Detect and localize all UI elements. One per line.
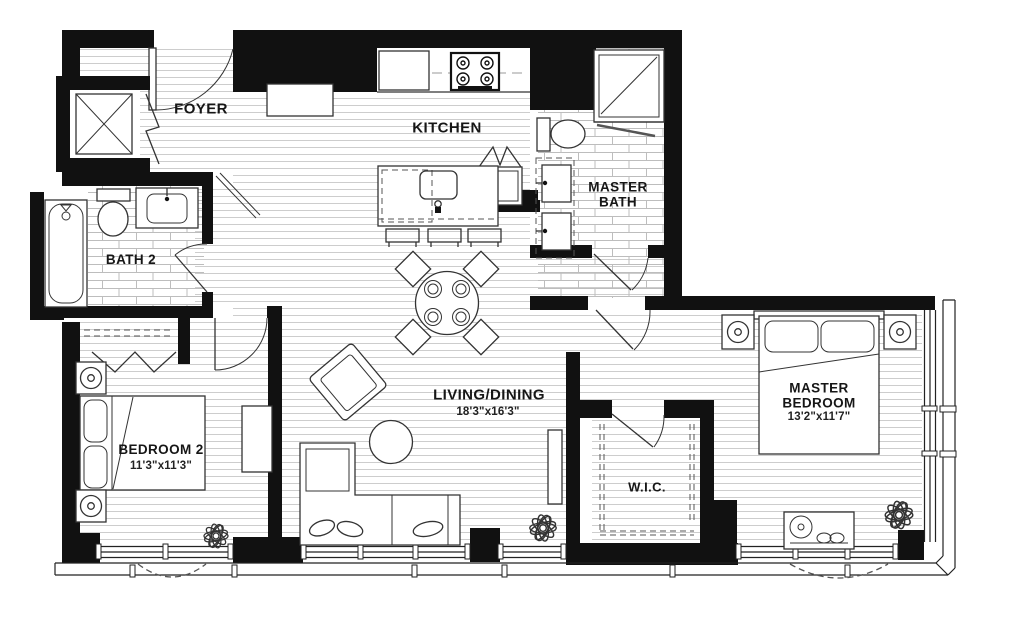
console-table — [267, 84, 333, 116]
toilet-icon — [551, 120, 585, 148]
floor-plan-drawing — [0, 0, 1024, 620]
console-table-hall — [548, 430, 562, 504]
dresser — [242, 406, 272, 472]
room-label-bedroom2: BEDROOM 2 — [118, 443, 203, 458]
room-dims-master-bedroom: 13'2"x11'7" — [788, 411, 851, 423]
toilet-tank — [97, 189, 130, 201]
faucet-icon — [165, 197, 169, 201]
nightstand — [722, 315, 754, 349]
room-label-bath2: BATH 2 — [106, 253, 156, 268]
room-label-master-bath-line1: MASTER — [588, 181, 647, 196]
toilet-tank — [537, 118, 550, 151]
room-label-kitchen: KITCHEN — [412, 120, 481, 137]
room-dims-bedroom2: 11'3"x11'3" — [130, 460, 192, 472]
room-label-master-bath: MASTER BATH — [588, 181, 647, 210]
bathtub-icon — [45, 200, 87, 307]
toilet-icon — [98, 202, 128, 236]
room-label-foyer: FOYER — [174, 101, 228, 118]
operable-window-arc — [790, 564, 888, 578]
room-label-master-bedroom: MASTER BEDROOM — [782, 382, 855, 411]
room-dims-living-dining: 18'3"x16'3" — [456, 406, 519, 418]
cooktop-icon — [451, 53, 499, 90]
room-label-master-bedroom-line1: MASTER — [782, 382, 855, 397]
coffee-table — [370, 421, 413, 464]
nightstand — [884, 315, 916, 349]
room-label-master-bedroom-line2: BEDROOM — [782, 396, 855, 411]
room-label-living-dining: LIVING/DINING — [433, 387, 545, 404]
room-label-master-bath-line2: BATH — [588, 195, 647, 210]
room-label-wic: W.I.C. — [628, 480, 666, 495]
dining-table — [416, 272, 479, 335]
bench-console — [784, 512, 854, 549]
floor-plan: FOYER KITCHEN MASTER BATH BATH 2 BEDROOM… — [0, 0, 1024, 620]
